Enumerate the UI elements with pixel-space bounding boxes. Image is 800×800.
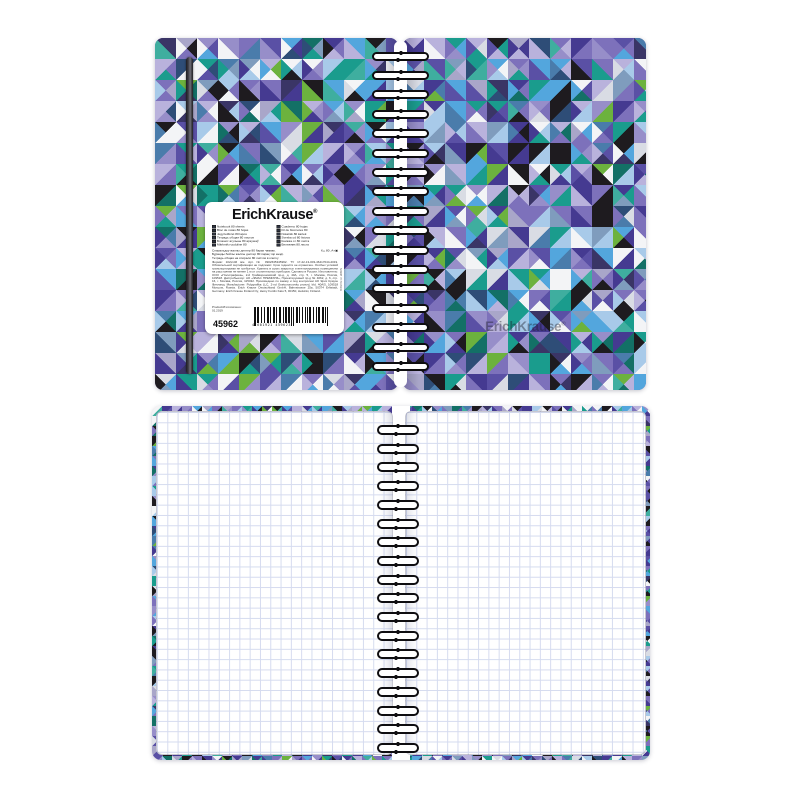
spiral-loop [377, 575, 419, 585]
spiral-loop [377, 537, 419, 547]
spiral-loop [372, 129, 429, 138]
closed-notebook: ErichKrause® ErichKrause® Notebook 80 sh… [155, 38, 646, 390]
registered-mark: ® [561, 322, 565, 328]
spiral-loop [372, 226, 429, 235]
label-column-left: Notebook 80 sheetsBloc de notas 80 hojas… [212, 225, 274, 247]
front-cover: ErichKrause® [403, 38, 646, 390]
spiral-loop [372, 149, 429, 158]
spiral-loop [372, 71, 429, 80]
spiral-loop [372, 246, 429, 255]
barcode-digits: 4 601921 459623 [252, 323, 344, 331]
spiral-loop [372, 265, 429, 274]
spiral-loop [377, 444, 419, 454]
spiral-loop [377, 649, 419, 659]
spiral-loop [377, 425, 419, 435]
open-notebook [152, 406, 650, 762]
sku-number: 45962 [213, 319, 238, 329]
label-line-text: Märkmik ruuduline 80 [217, 243, 247, 247]
spiral-loop [377, 706, 419, 716]
cover-pattern [403, 38, 646, 390]
spiral-loop [377, 462, 419, 472]
spiral-loop [372, 90, 429, 99]
right-page [405, 411, 646, 755]
left-page [156, 411, 393, 755]
label-column-right: Cuaderno 80 hojasFil de blocnotes 80Nota… [277, 225, 339, 247]
label-wide-lines: Спиральдүү жалпы дептер 80 барак чакмак.… [212, 249, 338, 260]
spiral-loop [377, 556, 419, 566]
spiral-loop [372, 362, 429, 371]
spiral-loop [372, 323, 429, 332]
spiral-loop [372, 187, 429, 196]
spiral-loop [372, 110, 429, 119]
label-language-columns: Notebook 80 sheetsBloc de notas 80 hojas… [212, 225, 338, 248]
spec-text: К₂₅ 80 ,А+▣ [321, 249, 338, 253]
spiral-loop [372, 52, 429, 61]
spiral-loop [377, 500, 419, 510]
registered-mark: ® [313, 209, 317, 215]
spiral-loop [377, 481, 419, 491]
brand-watermark: ErichKrause® [485, 319, 565, 334]
label-line: Бележник 80 листа [277, 243, 339, 247]
spiral-loop [372, 284, 429, 293]
barcode: 4 601921 459623 [254, 307, 334, 330]
spiral-loop [377, 724, 419, 734]
fine-print: Формат 102х146 мм. Арт. № 0902635345962.… [212, 261, 338, 310]
label-line: Märkmik ruuduline 80 [212, 243, 274, 247]
product-label: ErichKrause® Notebook 80 sheetsBloc de n… [205, 202, 344, 334]
elastic-band [186, 57, 193, 374]
spiral-loop [372, 304, 429, 313]
label-wide-line-text: Тетрадь общая на спирали 80 листов в кле… [212, 256, 278, 260]
flag-icon [277, 243, 281, 246]
spiral-loop [377, 631, 419, 641]
barcode-digits-text: 4 601921 459623 [252, 323, 344, 327]
spiral-loop [377, 743, 419, 753]
spiral-loop [377, 519, 419, 529]
spiral-loop [377, 593, 419, 603]
fine-print-text: Формат 102х146 мм. Арт. № 0902635345962.… [212, 261, 338, 293]
made-in-vertical-text: Made in Russia [336, 268, 343, 308]
barcode-bars [254, 307, 332, 323]
spiral-loop [372, 343, 429, 352]
spiral-loop [377, 612, 419, 622]
spiral-loop [372, 168, 429, 177]
brand-watermark-text: ErichKrause [485, 319, 561, 334]
label-line-text: Бележник 80 листа [282, 243, 309, 247]
brand-logo-text: ErichKrause [232, 207, 313, 223]
flag-icon [212, 243, 216, 246]
label-wide-line: Тетрадь общая на спирали 80 листов в кле… [212, 256, 338, 260]
spiral-loop [372, 207, 429, 216]
made-in-vertical-label: Made in Russia [339, 268, 342, 291]
brand-logo: ErichKrause® [205, 207, 344, 223]
spiral-loop [377, 687, 419, 697]
spiral-loop [377, 668, 419, 678]
